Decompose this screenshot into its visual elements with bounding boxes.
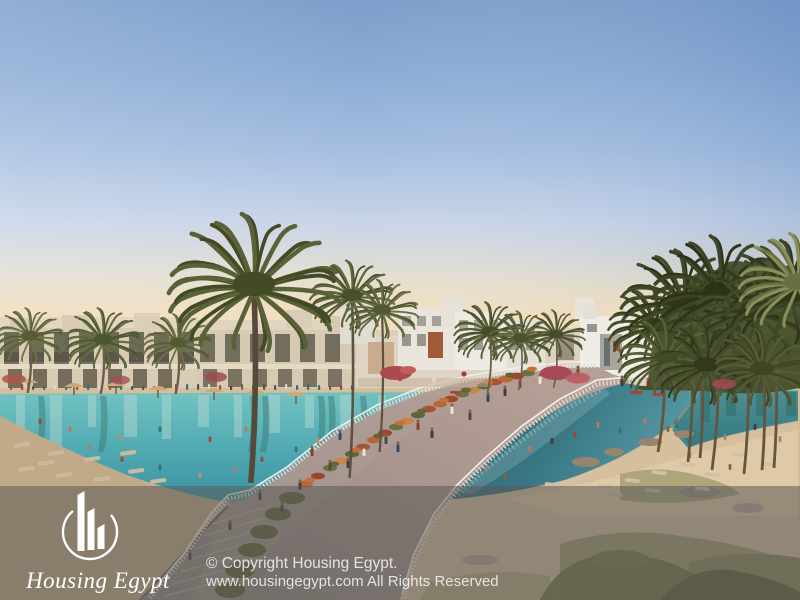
svg-text:© Copyright Housing Egypt.: © Copyright Housing Egypt. xyxy=(206,555,398,572)
svg-text:www.housingegypt.com All Right: www.housingegypt.com All Rights Reserved xyxy=(205,573,499,590)
svg-text:Housing Egypt: Housing Egypt xyxy=(25,568,170,593)
